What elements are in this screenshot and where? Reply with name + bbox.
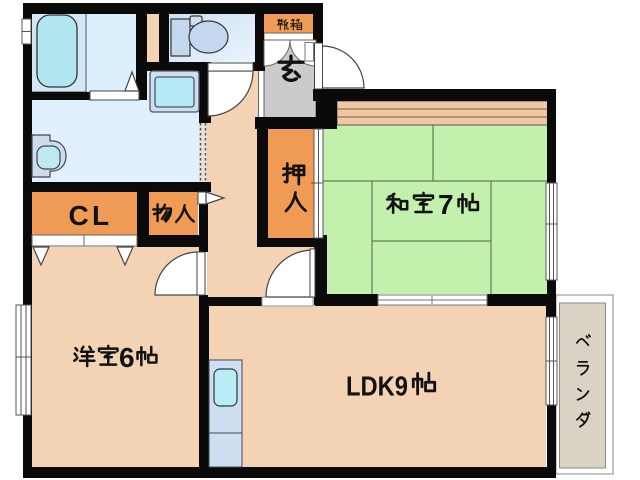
svg-text:L: L <box>92 200 109 231</box>
svg-text:LDK9: LDK9 <box>346 371 408 402</box>
svg-text:C: C <box>69 200 89 231</box>
svg-text:6: 6 <box>119 342 135 373</box>
svg-text:7: 7 <box>438 189 454 220</box>
